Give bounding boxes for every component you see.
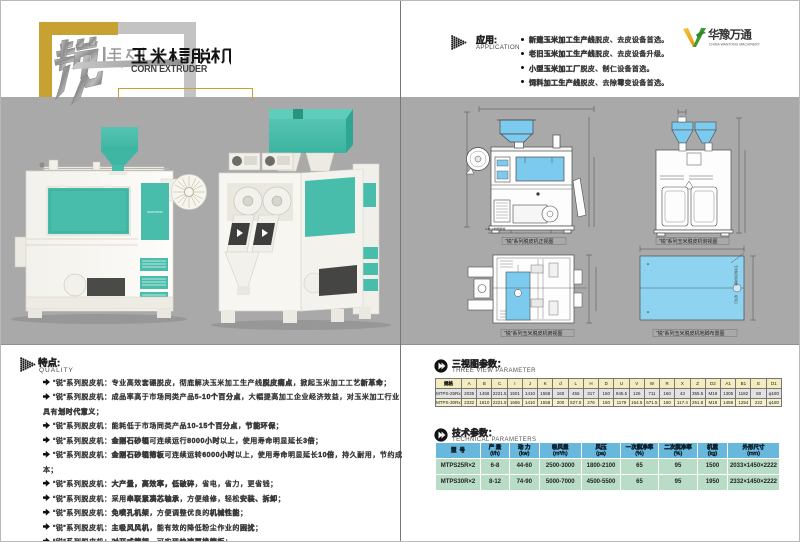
svg-text:吸风口: 吸风口 xyxy=(734,295,738,304)
svg-text:"锐"系列玉米脱皮机地脚布置图: "锐"系列玉米脱皮机地脚布置图 xyxy=(656,330,725,337)
svg-text:4-M16地脚螺栓: 4-M16地脚螺栓 xyxy=(485,226,506,231)
svg-text:华豫万通: 华豫万通 xyxy=(708,28,752,42)
svg-text:WANTONG: WANTONG xyxy=(147,210,163,214)
svg-text:"锐"系列玉米脱皮机俯视图: "锐"系列玉米脱皮机俯视图 xyxy=(504,330,563,337)
svg-text:"锐"系列脱皮机正视图: "锐"系列脱皮机正视图 xyxy=(505,238,554,245)
svg-text:"锐"系列玉米脱皮机侧视图: "锐"系列玉米脱皮机侧视图 xyxy=(659,238,718,245)
svg-text:CHINA WANTONG MACHINERY: CHINA WANTONG MACHINERY xyxy=(709,43,761,47)
svg-text:玉米脱皮机地脚: 玉米脱皮机地脚 xyxy=(734,265,739,286)
